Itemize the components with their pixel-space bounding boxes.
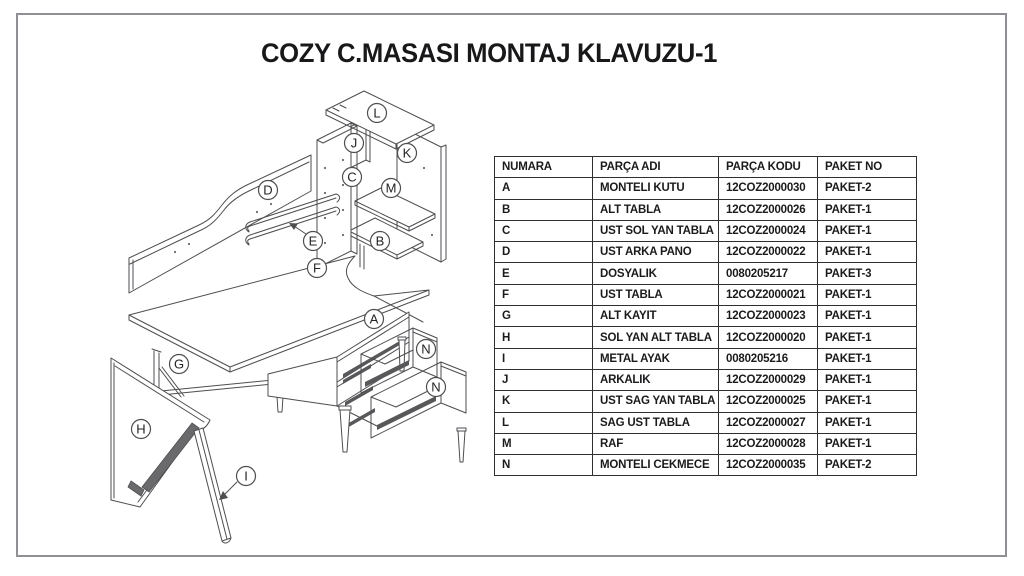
part-label-G: G [170,355,189,374]
column-header: PARÇA ADI [593,157,719,178]
svg-text:L: L [373,106,380,121]
table-cell: SOL YAN ALT TABLA [593,327,719,348]
leader-arrow-I [219,482,237,500]
table-cell: A [495,178,593,199]
table-cell: PAKET-2 [818,178,917,199]
table-row: KUST SAG YAN TABLA12COZ2000025PAKET-1 [495,391,917,412]
svg-text:J: J [351,136,358,151]
table-cell: 12COZ2000023 [719,306,818,327]
table-cell: H [495,327,593,348]
table-row: IMETAL AYAK0080205216PAKET-1 [495,348,917,369]
assembly-guide-page: COZY C.MASASI MONTAJ KLAVUZU-1 [0,0,1024,576]
part-label-F: F [308,259,327,278]
table-cell: PAKET-1 [818,327,917,348]
svg-text:N: N [421,342,430,357]
part-label-L: L [368,104,387,123]
part-label-E: E [304,232,323,251]
table-cell: C [495,220,593,241]
table-cell: N [495,455,593,476]
table-cell: I [495,348,593,369]
part-label-D: D [259,181,278,200]
part-label-A: A [365,310,384,329]
part-label-C: C [343,168,362,187]
table-cell: PAKET-1 [818,284,917,305]
table-cell: ALT TABLA [593,199,719,220]
table-row: HSOL YAN ALT TABLA12COZ2000020PAKET-1 [495,327,917,348]
table-cell: 12COZ2000029 [719,369,818,390]
table-cell: PAKET-1 [818,433,917,454]
table-cell: 12COZ2000021 [719,284,818,305]
table-cell: 12COZ2000025 [719,391,818,412]
part-label-B: B [371,232,390,251]
svg-text:F: F [313,261,321,276]
table-cell: PAKET-1 [818,391,917,412]
part-label-N: N [417,340,436,359]
table-cell: 12COZ2000022 [719,242,818,263]
part-drawer-N2 [371,362,466,462]
table-cell: PAKET-1 [818,242,917,263]
table-cell: PAKET-3 [818,263,917,284]
table-cell: 12COZ2000020 [719,327,818,348]
table-cell: L [495,412,593,433]
table-row: GALT KAYIT12COZ2000023PAKET-1 [495,306,917,327]
table-cell: PAKET-1 [818,220,917,241]
part-label-M: M [382,179,401,198]
table-cell: PAKET-1 [818,369,917,390]
svg-text:H: H [136,422,145,437]
parts-table: NUMARAPARÇA ADIPARÇA KODUPAKET NO AMONTE… [494,156,917,476]
column-header: NUMARA [495,157,593,178]
table-row: FUST TABLA12COZ2000021PAKET-1 [495,284,917,305]
table-cell: PAKET-1 [818,306,917,327]
table-cell: UST SOL YAN TABLA [593,220,719,241]
parts-table-body: AMONTELI KUTU12COZ2000030PAKET-2BALT TAB… [495,178,917,476]
table-cell: MONTELI KUTU [593,178,719,199]
svg-text:K: K [403,146,412,161]
table-cell: 12COZ2000028 [719,433,818,454]
svg-text:I: I [244,469,248,484]
table-cell: B [495,199,593,220]
svg-text:C: C [347,170,356,185]
table-cell: SAG UST TABLA [593,412,719,433]
parts-table-head-row: NUMARAPARÇA ADIPARÇA KODUPAKET NO [495,157,917,178]
table-cell: METAL AYAK [593,348,719,369]
table-cell: 12COZ2000030 [719,178,818,199]
table-cell: F [495,284,593,305]
table-cell: M [495,433,593,454]
part-label-N: N [427,378,446,397]
exploded-assembly-diagram: LJKCMDEBFANNGHI [95,85,475,555]
page-title: COZY C.MASASI MONTAJ KLAVUZU-1 [24,38,953,69]
table-row: NMONTELI CEKMECE12COZ2000035PAKET-2 [495,455,917,476]
part-label-H: H [132,420,151,439]
table-cell: 12COZ2000024 [719,220,818,241]
table-row: JARKALIK12COZ2000029PAKET-1 [495,369,917,390]
table-cell: 0080205216 [719,348,818,369]
column-header: PAKET NO [818,157,917,178]
table-cell: UST ARKA PANO [593,242,719,263]
table-row: BALT TABLA12COZ2000026PAKET-1 [495,199,917,220]
table-cell: 12COZ2000027 [719,412,818,433]
table-row: EDOSYALIK0080205217PAKET-3 [495,263,917,284]
table-row: MRAF12COZ2000028PAKET-1 [495,433,917,454]
svg-text:E: E [309,234,318,249]
column-header: PARÇA KODU [719,157,818,178]
table-cell: PAKET-2 [818,455,917,476]
table-cell: J [495,369,593,390]
table-cell: 0080205217 [719,263,818,284]
svg-text:B: B [376,234,385,249]
svg-text:M: M [386,181,397,196]
table-row: LSAG UST TABLA12COZ2000027PAKET-1 [495,412,917,433]
table-cell: 12COZ2000026 [719,199,818,220]
table-cell: UST SAG YAN TABLA [593,391,719,412]
svg-text:D: D [263,183,272,198]
table-row: AMONTELI KUTU12COZ2000030PAKET-2 [495,178,917,199]
leader-arrow-E [289,223,306,234]
svg-text:A: A [370,312,379,327]
table-cell: ARKALIK [593,369,719,390]
table-cell: 12COZ2000035 [719,455,818,476]
table-cell: UST TABLA [593,284,719,305]
part-label-K: K [398,144,417,163]
svg-text:N: N [431,380,440,395]
table-cell: G [495,306,593,327]
table-cell: K [495,391,593,412]
table-cell: ALT KAYIT [593,306,719,327]
table-cell: PAKET-1 [818,412,917,433]
table-cell: D [495,242,593,263]
table-row: CUST SOL YAN TABLA12COZ2000024PAKET-1 [495,220,917,241]
table-row: DUST ARKA PANO12COZ2000022PAKET-1 [495,242,917,263]
table-cell: PAKET-1 [818,199,917,220]
part-label-I: I [237,467,256,486]
table-cell: MONTELI CEKMECE [593,455,719,476]
table-cell: DOSYALIK [593,263,719,284]
table-cell: PAKET-1 [818,348,917,369]
table-cell: E [495,263,593,284]
part-label-J: J [345,134,364,153]
svg-text:G: G [174,357,184,372]
table-cell: RAF [593,433,719,454]
